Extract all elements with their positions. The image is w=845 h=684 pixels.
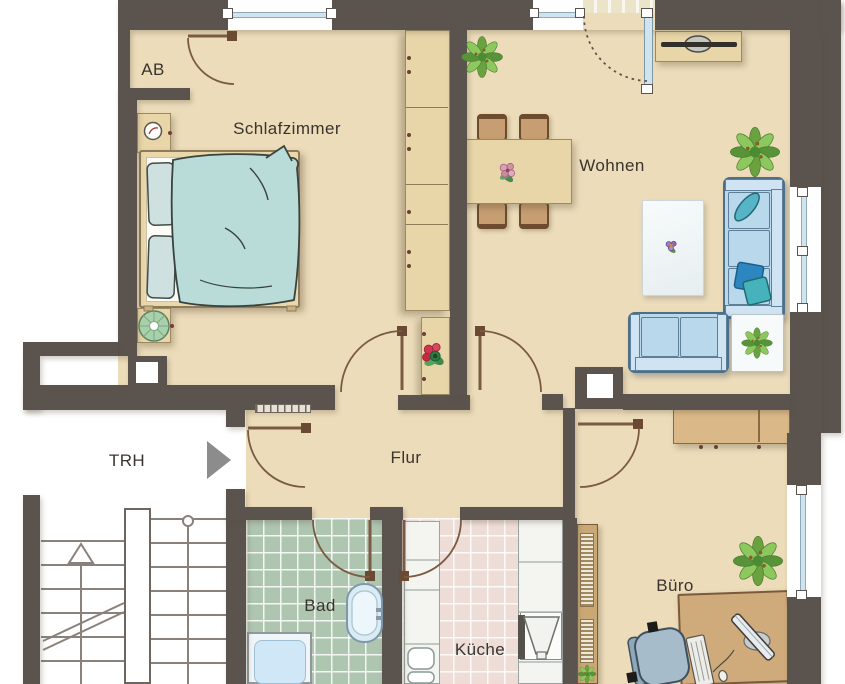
wall-segment	[398, 395, 470, 410]
window-mullion	[797, 246, 808, 256]
room-label-wohnen: Wohnen	[579, 156, 644, 176]
bathtub	[247, 632, 312, 684]
loveseat-cushion	[641, 317, 679, 357]
radiator	[255, 404, 311, 413]
dining-chair	[519, 202, 549, 229]
window-frame-cap	[796, 485, 807, 495]
sofa-backrest	[771, 189, 783, 307]
window-glass	[800, 490, 806, 594]
bed-mattress	[146, 157, 293, 302]
window-frame-cap	[529, 8, 539, 18]
loveseat-backrest	[635, 357, 722, 371]
books	[580, 533, 594, 607]
door-frame-cap	[641, 84, 653, 94]
room-label-flur: Flur	[391, 448, 422, 468]
wall-segment	[542, 394, 563, 410]
loveseat-cushion	[680, 317, 718, 357]
room-label-bad: Bad	[304, 596, 335, 616]
floor-plan: AB Schlafzimmer Wohnen TRH Flur Bad Küch…	[0, 0, 845, 684]
room-label-ab: AB	[141, 60, 164, 80]
room-label-schlafzimmer: Schlafzimmer	[233, 119, 341, 139]
console-table	[421, 317, 450, 395]
dining-chair	[477, 114, 507, 141]
stool-table	[137, 308, 171, 343]
wall-segment	[623, 394, 790, 410]
wall-segment	[370, 507, 403, 520]
stair-newel-wall	[124, 508, 151, 684]
window-frame-cap	[575, 8, 585, 18]
wall-segment	[821, 0, 841, 433]
desk	[677, 590, 791, 684]
sideboard-divider	[758, 408, 760, 442]
wardrobe-divider	[406, 184, 448, 185]
wall-segment	[23, 495, 40, 684]
wall-segment	[382, 520, 402, 684]
room-label-kueche: Küche	[455, 640, 505, 660]
dining-chair	[477, 202, 507, 229]
shaft-opening	[587, 374, 613, 398]
oven-front	[518, 615, 525, 659]
room-label-trh: TRH	[109, 451, 145, 471]
wall-segment	[226, 507, 312, 520]
sofa-cushion	[728, 230, 770, 267]
window-frame-cap	[326, 8, 337, 19]
window-frame-cap	[797, 303, 808, 313]
wall-segment	[226, 408, 245, 427]
shaft-opening	[136, 362, 158, 383]
window-frame-cap	[796, 590, 807, 600]
loveseat	[628, 312, 729, 373]
wall-segment	[460, 507, 563, 520]
entrance-door-leaf	[644, 12, 653, 86]
wall-segment	[226, 520, 246, 684]
sofa-cushion	[728, 192, 770, 229]
stair-guideline-left	[80, 545, 82, 684]
room-label-buero: Büro	[656, 576, 694, 596]
dining-table	[460, 139, 572, 204]
wardrobe-divider	[406, 107, 448, 108]
wall-segment	[450, 30, 467, 395]
kitchen-counter-left	[404, 521, 440, 684]
wardrobe-divider	[406, 224, 448, 225]
nightstand	[137, 113, 171, 153]
tv-sideboard	[655, 31, 742, 62]
stair-flight-left	[41, 540, 124, 684]
bookshelf	[577, 524, 598, 684]
window-frame-cap	[797, 187, 808, 197]
wall-segment	[118, 88, 190, 100]
bathtub-basin	[254, 640, 306, 684]
window-frame-cap	[222, 8, 233, 19]
wall-segment	[563, 518, 577, 684]
sofa-cushion	[728, 268, 770, 305]
sofa-three-seat	[723, 177, 785, 319]
wardrobe	[405, 30, 450, 311]
rug	[642, 200, 704, 296]
wall-segment	[563, 408, 575, 518]
side-table	[731, 314, 784, 372]
wall-segment	[23, 342, 118, 356]
sideboard	[673, 407, 790, 444]
stair-guideline-right	[187, 526, 189, 684]
dining-chair	[519, 114, 549, 141]
books	[580, 619, 594, 663]
stove	[520, 612, 562, 660]
door-frame-cap	[641, 8, 653, 18]
window-glass	[229, 12, 329, 18]
wall-segment	[118, 100, 137, 356]
